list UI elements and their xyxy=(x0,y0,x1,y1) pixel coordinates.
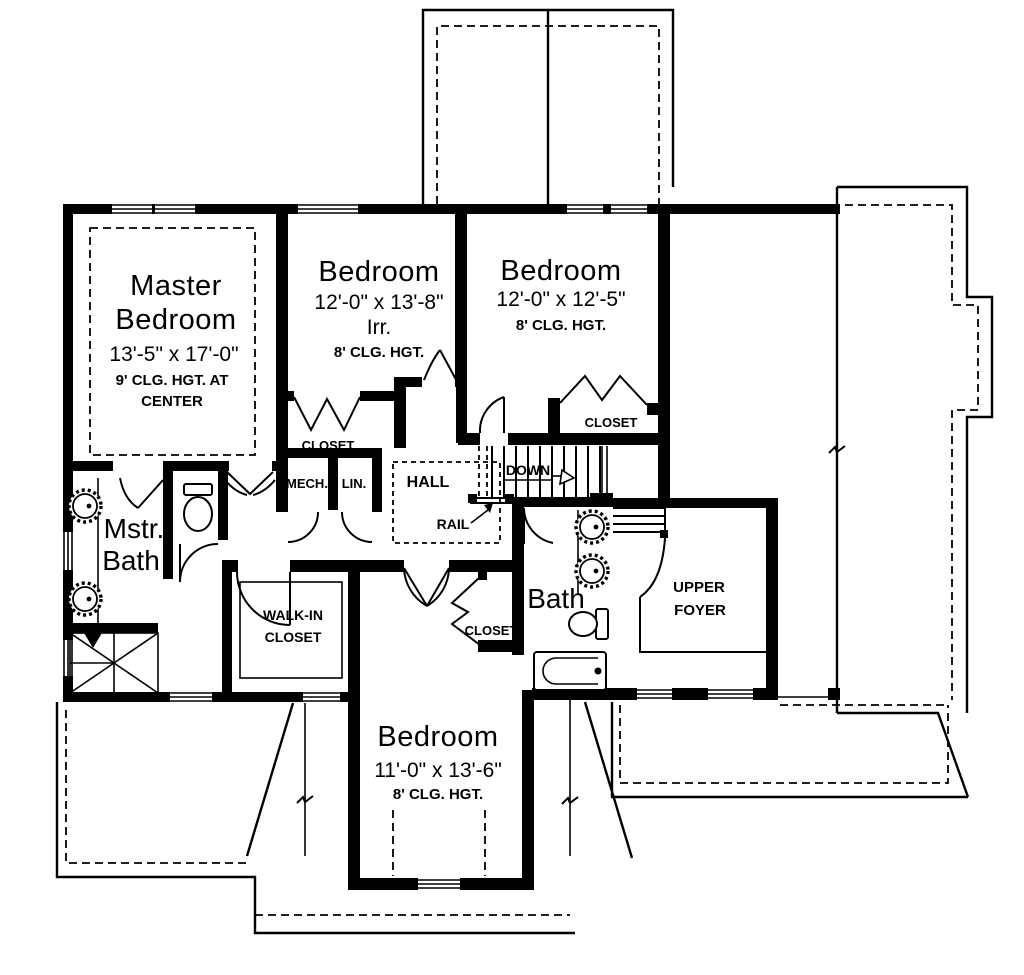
bedroom4-label: Bedroom 11'-0" x 13'-6" 8' CLG. HGT. xyxy=(374,721,502,803)
linen-label: LIN. xyxy=(342,476,367,491)
bathtub-icon xyxy=(534,652,606,690)
paper-background xyxy=(0,0,1024,975)
window xyxy=(418,877,460,891)
window xyxy=(62,532,74,570)
ceiling-note: 8' CLG. HGT. xyxy=(334,344,424,361)
room-name: Bedroom xyxy=(500,255,621,287)
closet-label: CLOSET xyxy=(585,415,638,430)
ceiling-note: CENTER xyxy=(141,393,203,410)
window xyxy=(303,691,340,703)
room-name: Master xyxy=(130,270,222,302)
room-name: Bedroom xyxy=(377,721,498,753)
room-dims: 12'-0" x 13'-8" xyxy=(314,291,443,314)
newel-post xyxy=(505,494,514,503)
closet-label: CLOSET xyxy=(302,438,355,453)
sink-icon xyxy=(576,511,608,543)
room-name: UPPER xyxy=(673,579,725,596)
closet-label: CLOSET xyxy=(465,623,518,638)
newel-post xyxy=(468,494,477,503)
room-name: CLOSET xyxy=(265,629,322,645)
window xyxy=(112,203,152,215)
window xyxy=(155,203,195,215)
window xyxy=(298,203,358,215)
room-name: Bath xyxy=(102,545,160,576)
window xyxy=(62,640,74,676)
room-dims: 13'-5" x 17'-0" xyxy=(109,343,238,366)
room-dims: 12'-0" x 12'-5" xyxy=(496,288,625,311)
ceiling-note: 9' CLG. HGT. AT xyxy=(116,372,229,389)
room-irr: Irr. xyxy=(367,316,392,339)
sink-icon xyxy=(69,583,101,615)
ceiling-note: 8' CLG. HGT. xyxy=(393,786,483,803)
toilet-icon xyxy=(184,484,212,531)
window xyxy=(170,691,212,703)
room-name: Mstr. xyxy=(104,513,165,544)
room-name: FOYER xyxy=(674,602,726,619)
floor-plan-drawing: Master Bedroom 13'-5" x 17'-0" 9' CLG. H… xyxy=(0,0,1024,975)
room-name: WALK-IN xyxy=(263,607,323,623)
window xyxy=(637,687,672,701)
master-bath-label: Mstr. Bath xyxy=(102,513,164,576)
down-label: DOWN xyxy=(506,462,550,478)
mech-label: MECH. xyxy=(286,476,328,491)
window xyxy=(567,203,603,215)
window xyxy=(708,687,753,701)
room-name: Bedroom xyxy=(115,304,236,336)
ceiling-note: 8' CLG. HGT. xyxy=(516,317,606,334)
newel-post xyxy=(660,530,668,538)
bath-label: Bath xyxy=(527,583,585,614)
room-dims: 11'-0" x 13'-6" xyxy=(374,759,502,782)
room-name: Bedroom xyxy=(318,256,439,288)
rail-label: RAIL xyxy=(437,516,470,532)
window xyxy=(611,203,647,215)
floor-plan: Master Bedroom 13'-5" x 17'-0" 9' CLG. H… xyxy=(0,0,1024,975)
sink-icon xyxy=(69,490,101,522)
hall-label: HALL xyxy=(407,474,450,491)
